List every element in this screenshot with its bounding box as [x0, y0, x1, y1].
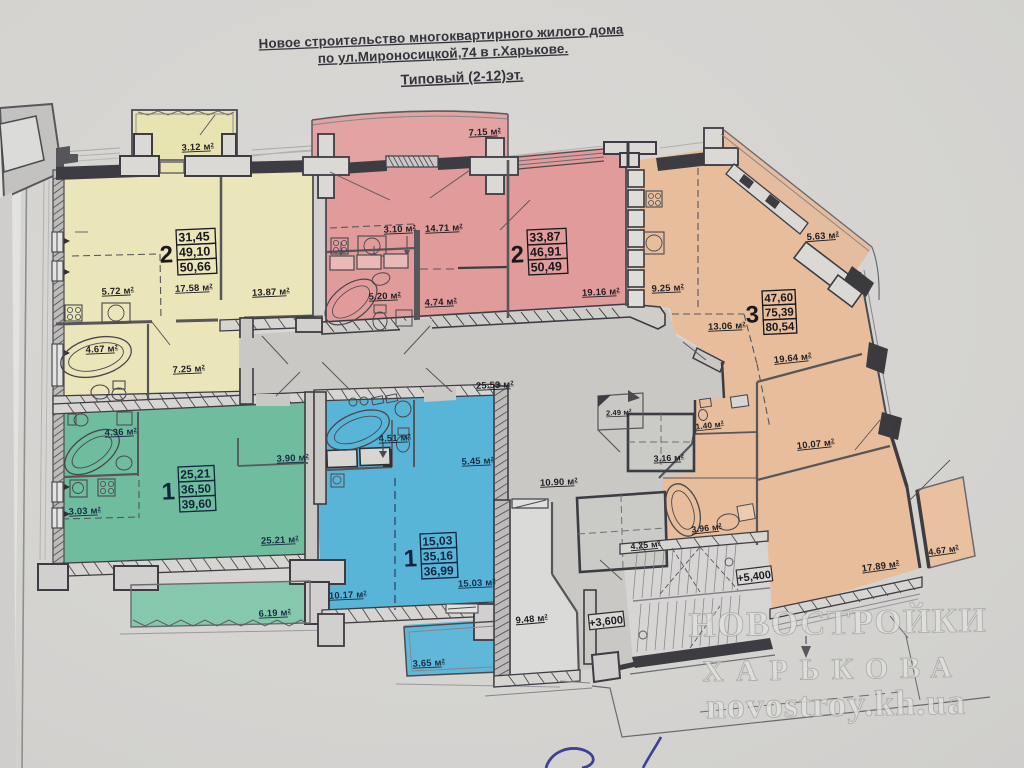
- svg-text:47,60: 47,60: [764, 292, 793, 305]
- svg-text:80,54: 80,54: [765, 321, 795, 334]
- svg-text:5.20 м2: 5.20 м2: [368, 289, 401, 301]
- svg-text:novostroy.kh.ua: novostroy.kh.ua: [705, 682, 966, 727]
- svg-text:3.90 м2: 3.90 м2: [276, 451, 309, 463]
- svg-text:7.25 м2: 7.25 м2: [172, 362, 205, 374]
- svg-text:33,87: 33,87: [529, 229, 561, 244]
- svg-text:4.51 м2: 4.51 м2: [378, 431, 411, 443]
- svg-text:10.17 м2: 10.17 м2: [329, 588, 367, 601]
- svg-text:2: 2: [159, 241, 174, 269]
- svg-text:14.71 м2: 14.71 м2: [425, 221, 463, 234]
- svg-text:25,21: 25,21: [180, 466, 211, 481]
- svg-text:5.72 м2: 5.72 м2: [101, 284, 134, 296]
- svg-text:50,49: 50,49: [530, 259, 562, 274]
- svg-text:13.87 м2: 13.87 м2: [252, 285, 290, 298]
- svg-text:2: 2: [510, 241, 525, 269]
- svg-text:75,39: 75,39: [765, 306, 794, 319]
- svg-text:9.25 м2: 9.25 м2: [651, 281, 684, 293]
- svg-text:50,66: 50,66: [179, 259, 211, 274]
- svg-text:3.10 м2: 3.10 м2: [383, 222, 416, 234]
- svg-text:36,50: 36,50: [181, 481, 212, 496]
- svg-text:3.03 м2: 3.03 м2: [68, 504, 101, 516]
- svg-text:НОВОСТРОЙКИ: НОВОСТРОЙКИ: [688, 600, 987, 644]
- svg-text:6.19 м2: 6.19 м2: [258, 606, 291, 618]
- svg-text:35,16: 35,16: [423, 548, 454, 563]
- svg-text:3.16 м2: 3.16 м2: [653, 452, 684, 463]
- svg-text:31,45: 31,45: [178, 229, 210, 244]
- svg-text:49,10: 49,10: [179, 244, 211, 259]
- svg-text:19.16 м2: 19.16 м2: [582, 285, 620, 298]
- svg-text:2.49 м2: 2.49 м2: [606, 407, 632, 417]
- svg-text:13.06 м2: 13.06 м2: [708, 319, 746, 332]
- svg-text:17.58 м2: 17.58 м2: [175, 281, 213, 294]
- svg-text:4.74 м2: 4.74 м2: [424, 295, 457, 307]
- svg-text:10.90 м2: 10.90 м2: [540, 475, 578, 488]
- svg-text:15,03: 15,03: [422, 533, 453, 548]
- svg-text:3.12 м2: 3.12 м2: [181, 140, 214, 152]
- svg-text:5.45 м2: 5.45 м2: [461, 454, 494, 466]
- svg-text:4.67 м2: 4.67 м2: [85, 342, 118, 354]
- svg-text:1: 1: [403, 545, 418, 573]
- svg-text:4.36 м2: 4.36 м2: [104, 425, 137, 437]
- svg-text:46,91: 46,91: [530, 244, 562, 259]
- svg-text:25.53 м2: 25.53 м2: [476, 378, 514, 391]
- svg-text:25.21 м2: 25.21 м2: [261, 533, 299, 546]
- svg-text:3: 3: [745, 301, 760, 329]
- svg-text:36,99: 36,99: [423, 563, 454, 578]
- svg-text:1: 1: [161, 478, 176, 506]
- svg-text:39,60: 39,60: [181, 496, 212, 511]
- svg-text:3.65 м2: 3.65 м2: [412, 656, 445, 668]
- svg-text:15.03 м2: 15.03 м2: [458, 576, 496, 589]
- svg-text:7.15 м2: 7.15 м2: [468, 125, 501, 137]
- svg-text:5.63 м2: 5.63 м2: [806, 229, 839, 242]
